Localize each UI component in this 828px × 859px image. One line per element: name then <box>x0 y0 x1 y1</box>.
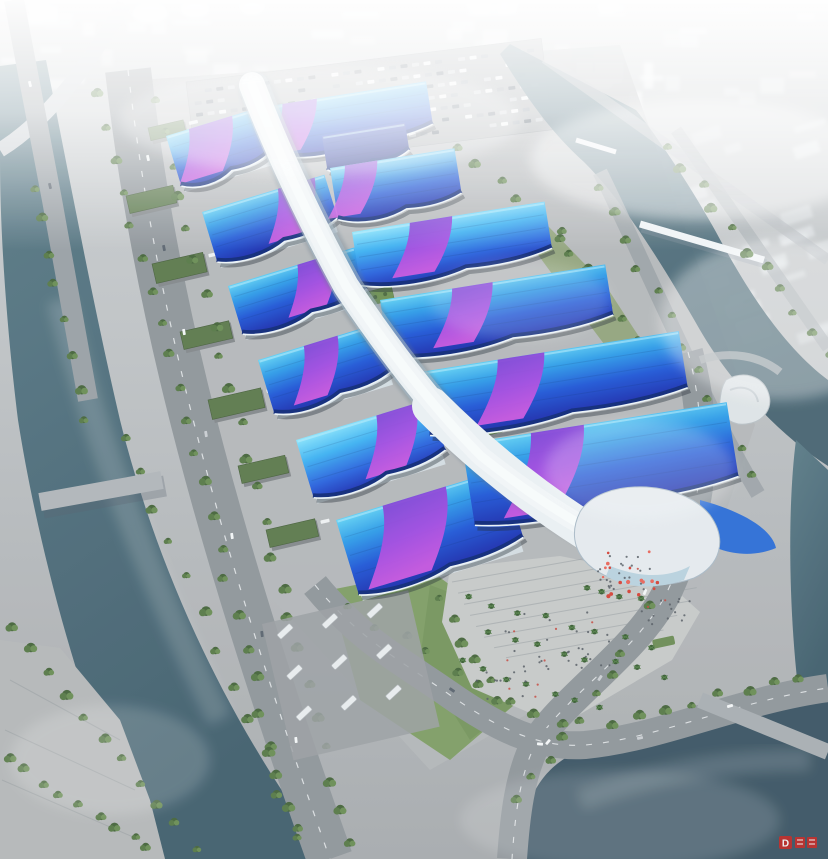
rendering-canvas: D <box>0 0 828 859</box>
global-veil <box>0 0 828 859</box>
aerial-rendering: D <box>0 0 828 859</box>
haze-overlays <box>0 0 828 859</box>
watermark-character-block <box>795 837 805 848</box>
watermark-character-block <box>807 837 817 848</box>
watermark: D <box>779 836 817 850</box>
watermark-glyph: D <box>782 839 789 850</box>
